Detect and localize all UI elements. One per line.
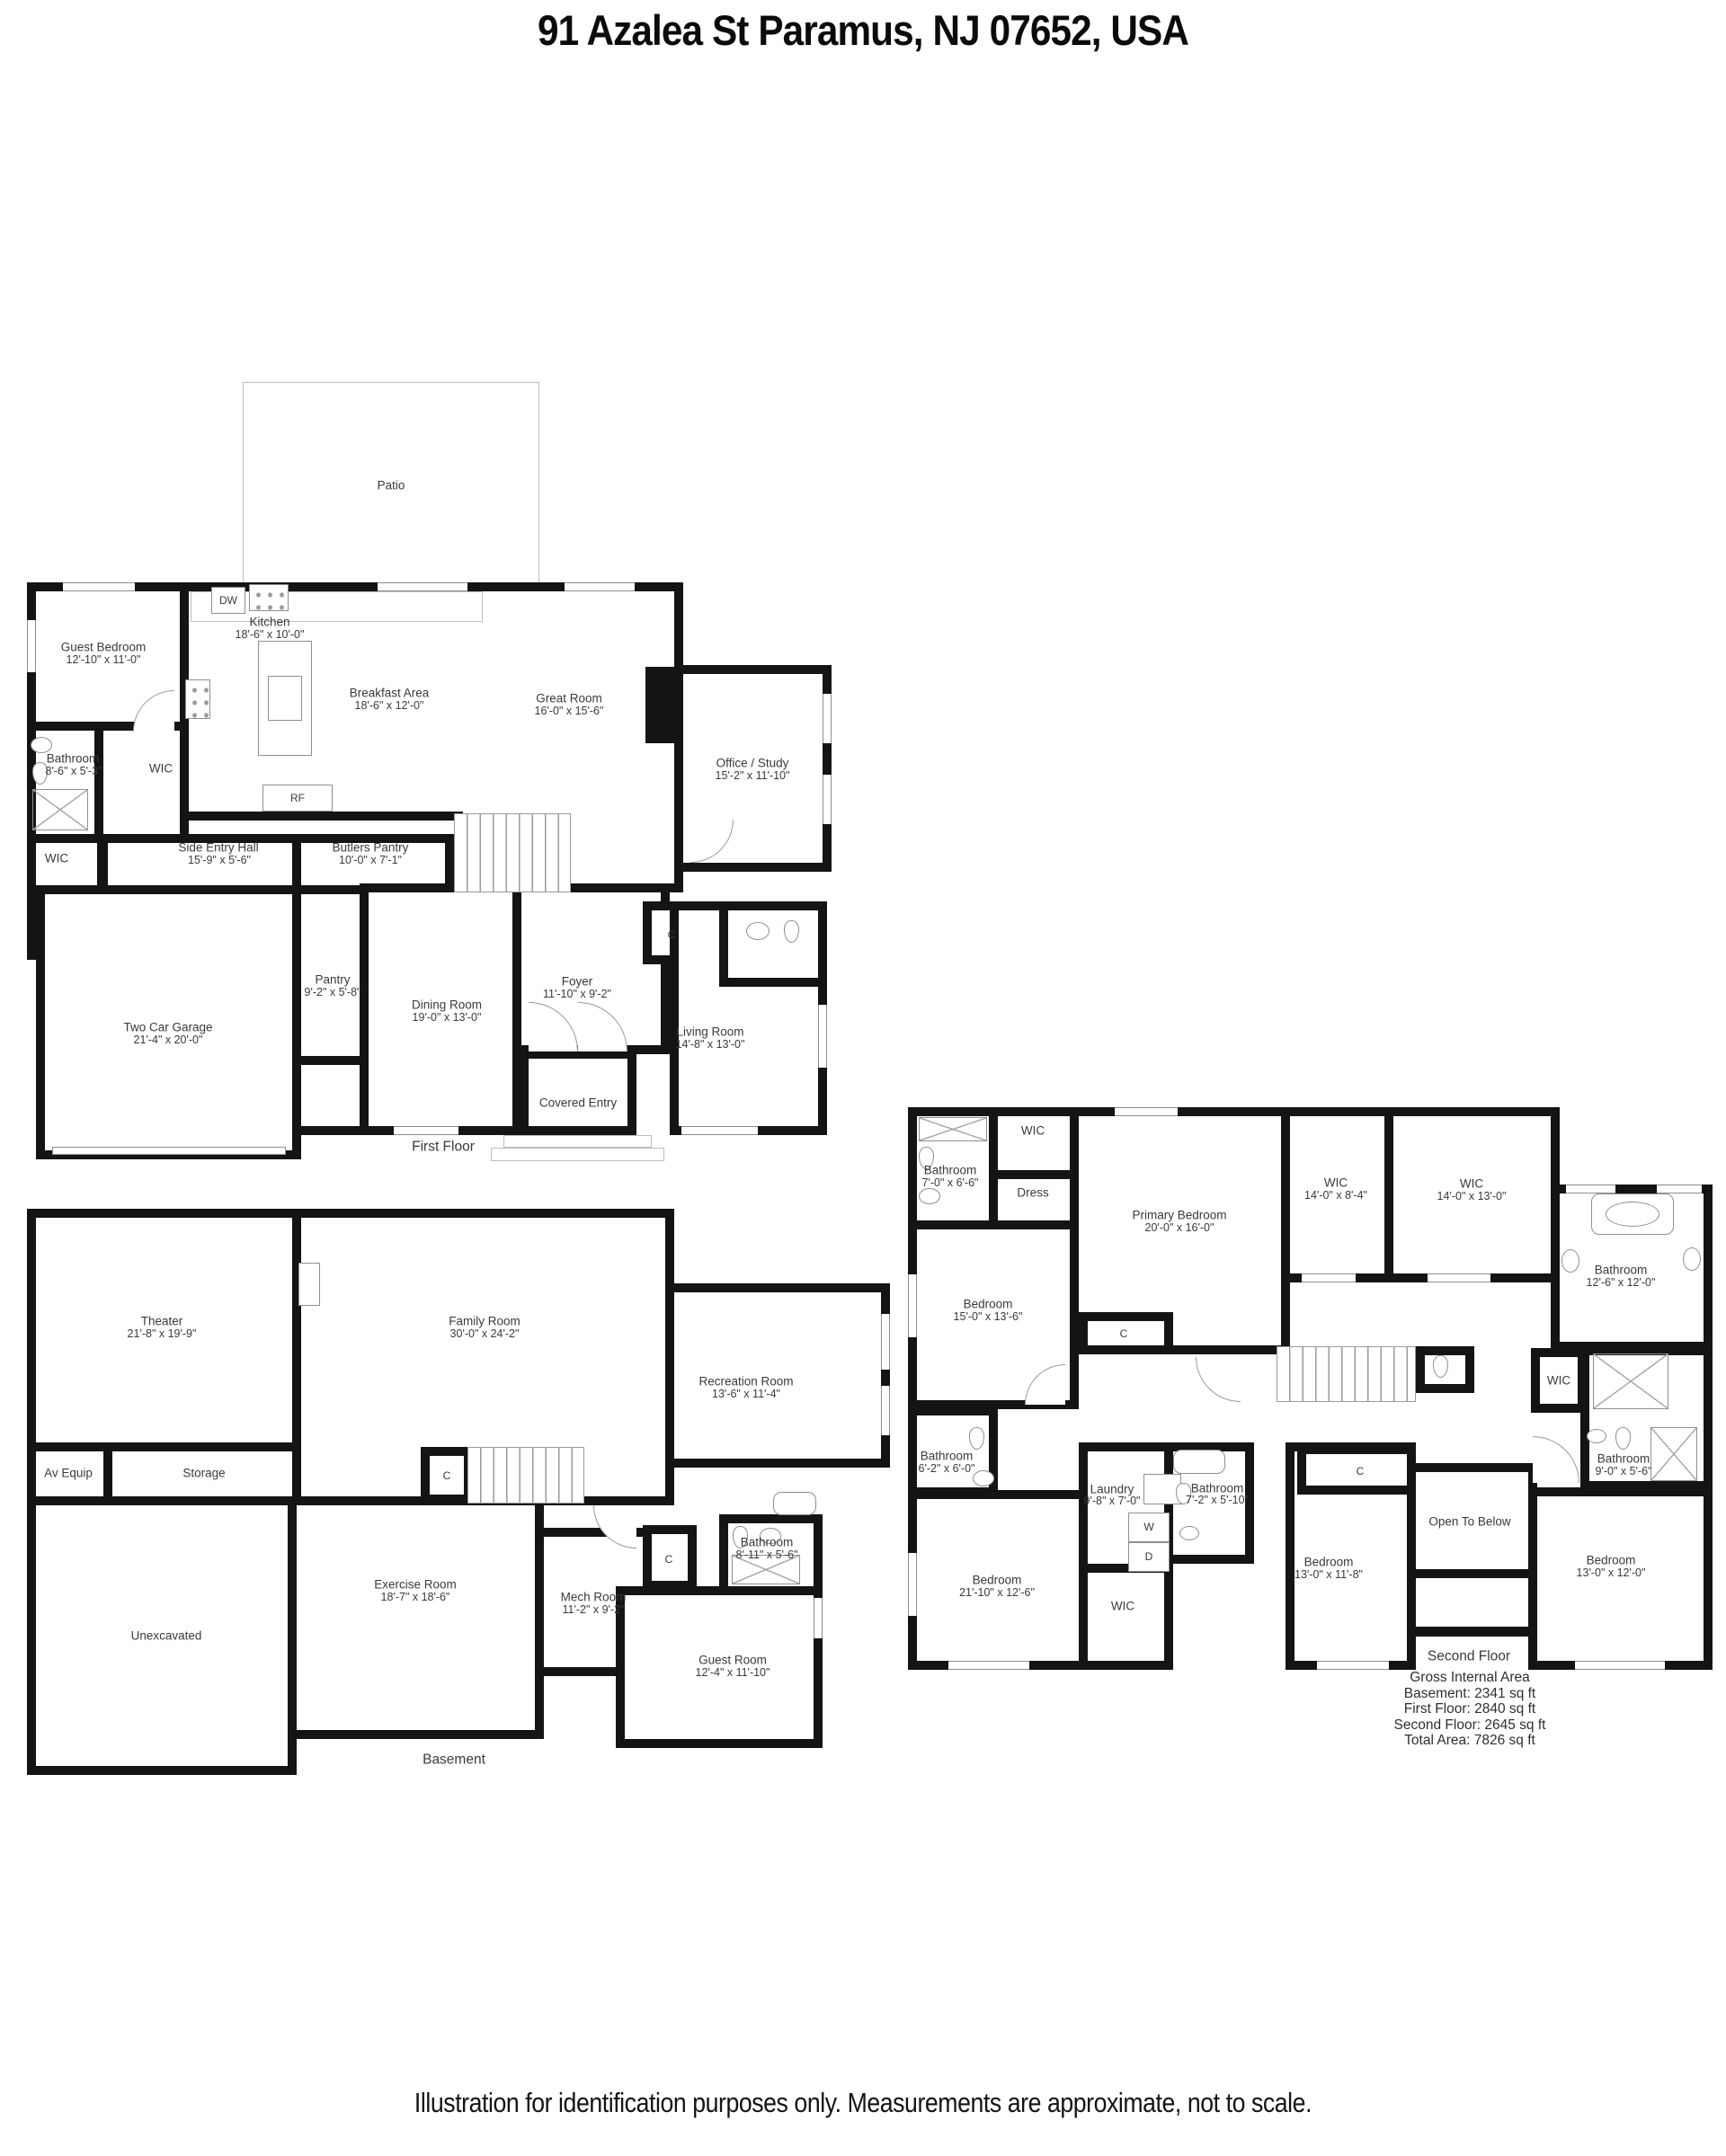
closet-label: C (668, 929, 676, 940)
window (881, 1314, 890, 1370)
kitchen-south-wall (184, 812, 463, 821)
bedroom-left-dims: 21'-10" x 12'-6" (959, 1587, 1035, 1599)
laundry-label: Laundry (1090, 1483, 1134, 1495)
sink-icon (919, 1188, 940, 1204)
office-study-label: Office / Study (716, 757, 789, 769)
dining-room-label: Dining Room (412, 998, 482, 1011)
dryer-label: D (1145, 1551, 1153, 1562)
window (818, 1005, 827, 1068)
second-floor-label: Second Floor (1428, 1649, 1510, 1664)
living-room-dims: 14'-8" x 13'-0" (676, 1039, 745, 1051)
exercise-room-walls (288, 1496, 544, 1739)
shower-icon (919, 1117, 987, 1141)
av-equip-label: Av Equip (44, 1467, 93, 1479)
bathroom-right-dims: 9'-0" x 5'-6" (1596, 1466, 1652, 1477)
window (1115, 1107, 1178, 1116)
shower-icon (1593, 1353, 1668, 1409)
guest-wic-walls (94, 722, 189, 843)
breakfast-area-dims: 18'-6" x 12'-0" (355, 700, 424, 712)
wic-top-walls (989, 1107, 1079, 1179)
entry-step-1 (503, 1135, 652, 1148)
area-summary-title: Gross Internal Area (1394, 1670, 1546, 1686)
kitchen-dims: 18'-6" x 10'-0" (236, 629, 305, 641)
dining-ext-walls (292, 1056, 369, 1135)
theater-dims: 21'-8" x 19'-9" (128, 1328, 197, 1340)
window (1302, 1273, 1356, 1282)
sink-icon (1683, 1247, 1701, 1271)
closet-label: C (443, 1470, 451, 1481)
wic-label: WIC (1021, 1124, 1045, 1137)
window (1317, 1661, 1389, 1670)
window (814, 1598, 823, 1638)
primary-bedroom-label: Primary Bedroom (1132, 1209, 1226, 1221)
window (1575, 1661, 1665, 1670)
window (27, 620, 36, 672)
window (681, 1126, 758, 1135)
dw-label: DW (219, 595, 237, 606)
window (823, 694, 832, 743)
wic-label: WIC (149, 762, 173, 775)
bedroom-front-dims: 15'-0" x 13'-6" (954, 1311, 1023, 1323)
family-room-dims: 30'-0" x 24'-2" (450, 1328, 520, 1340)
washer-label: W (1143, 1522, 1153, 1532)
exercise-room-label: Exercise Room (374, 1578, 457, 1591)
door-arc (1533, 1436, 1579, 1483)
shower-icon (32, 789, 88, 830)
window (823, 775, 832, 824)
window (1428, 1273, 1490, 1282)
bedroom-right-label: Bedroom (1587, 1554, 1636, 1566)
bathroom-top-label: Bathroom (924, 1164, 977, 1176)
bedroom-mid-label: Bedroom (1304, 1556, 1354, 1568)
powder-room-walls (719, 901, 827, 987)
wic-bottom-label: WIC (1111, 1600, 1134, 1612)
tub-icon (1173, 1450, 1225, 1474)
bathroom-top-dims: 7'-0" x 6'-6" (922, 1177, 979, 1189)
primary-bedroom-dims: 20'-0" x 16'-0" (1145, 1222, 1214, 1234)
window (394, 1126, 458, 1135)
mech-room-label: Mech Room (561, 1591, 627, 1603)
stairs-basement (467, 1447, 584, 1504)
entry-step-2 (491, 1148, 664, 1161)
laundry-dims: 9'-8" x 7'-0" (1084, 1495, 1141, 1507)
disclaimer-text: Illustration for identification purposes… (120, 2087, 1605, 2119)
basement-label: Basement (423, 1752, 485, 1767)
foyer-dims: 11'-10" x 9'-2" (543, 989, 611, 1000)
dining-room-dims: 19'-0" x 13'-0" (413, 1012, 482, 1024)
first-floor-label: First Floor (412, 1140, 475, 1154)
media-cabinet (298, 1263, 320, 1306)
bathroom-laundry-label: Bathroom (1191, 1482, 1244, 1495)
island-sink-icon (268, 676, 302, 721)
pantry-label: Pantry (315, 973, 350, 986)
closet-label: C (665, 1554, 673, 1565)
mech-room-dims: 11'-2" x 9'-2" (562, 1604, 624, 1616)
tub-icon (773, 1492, 816, 1515)
patio-label: Patio (378, 479, 405, 492)
dress-label: Dress (1017, 1186, 1048, 1199)
sink-icon (1561, 1249, 1579, 1273)
page-title: 91 Azalea St Paramus, NJ 07652, USA (86, 5, 1640, 55)
bedroom-right-dims: 13'-0" x 12'-0" (1577, 1567, 1646, 1579)
window (1657, 1184, 1702, 1193)
wic-a-label: WIC (1324, 1176, 1348, 1189)
floor-plan-sheet: 91 Azalea St Paramus, NJ 07652, USA (0, 0, 1726, 2156)
butlers-pantry-dims: 10'-0" x 7'-1" (339, 855, 402, 866)
wic-b-label: WIC (1460, 1177, 1483, 1190)
window (565, 582, 635, 591)
storage-label: Storage (182, 1467, 225, 1479)
great-room-label: Great Room (536, 692, 602, 705)
window (881, 1386, 890, 1435)
stairs-second-floor (1277, 1346, 1416, 1402)
unexcavated-label: Unexcavated (131, 1629, 202, 1642)
basement-guest-dims: 12'-4" x 11'-10" (696, 1667, 770, 1679)
open-to-below-label: Open To Below (1428, 1515, 1510, 1528)
wic-label: WIC (45, 852, 68, 865)
tub-basin (1606, 1202, 1659, 1227)
window (63, 582, 135, 591)
butlers-pantry-label: Butlers Pantry (333, 841, 409, 854)
wic-a-dims: 14'-0" x 8'-4" (1304, 1190, 1367, 1202)
family-room-label: Family Room (449, 1315, 520, 1327)
window (908, 1274, 917, 1337)
bedroom-mid-dims: 13'-0" x 11'-8" (1294, 1569, 1363, 1581)
basement-bathroom-dims: 8'-11" x 5'-6" (735, 1549, 797, 1561)
area-summary-basement: Basement: 2341 sq ft (1394, 1686, 1546, 1702)
guest-bedroom-dims: 12'-10" x 11'-0" (67, 654, 141, 666)
garage-label: Two Car Garage (123, 1021, 212, 1034)
area-summary-second: Second Floor: 2645 sq ft (1394, 1717, 1546, 1734)
range-icon (249, 584, 289, 611)
sink-icon (1179, 1526, 1199, 1540)
bathroom-left-dims: 6'-2" x 6'-0" (919, 1463, 975, 1475)
bathroom-dims: 8'-6" x 5'-3" (46, 766, 102, 777)
side-entry-hall-dims: 15'-9" x 5'-6" (188, 855, 251, 866)
primary-bathroom-label: Bathroom (1595, 1264, 1648, 1276)
bathroom-right-label: Bathroom (1597, 1452, 1650, 1465)
bathroom-laundry-dims: 7'-2" x 5'-10" (1186, 1495, 1249, 1506)
basement-bathroom-label: Bathroom (741, 1536, 794, 1548)
sink-icon (746, 922, 770, 940)
window (948, 1661, 1029, 1670)
sink-icon (973, 1470, 994, 1486)
cooktop-icon (185, 679, 210, 719)
wic-bottom-walls (1079, 1564, 1173, 1670)
great-room-dims: 16'-0" x 15'-6" (535, 705, 604, 717)
rf-label: RF (290, 793, 305, 803)
guest-bedroom-label: Guest Bedroom (61, 641, 147, 653)
closet-label: C (1120, 1328, 1128, 1339)
recreation-room-dims: 13'-6" x 11'-4" (712, 1389, 780, 1400)
stairs-first-floor (454, 813, 571, 892)
area-summary-total: Total Area: 7826 sq ft (1394, 1733, 1546, 1749)
covered-entry-walls (520, 1050, 636, 1135)
window (378, 582, 467, 591)
area-summary: Gross Internal Area Basement: 2341 sq ft… (1394, 1670, 1546, 1749)
garage-door (52, 1147, 286, 1155)
exercise-room-dims: 18'-7" x 18'-6" (381, 1592, 450, 1603)
shower-icon (1650, 1427, 1697, 1481)
recreation-room-label: Recreation Room (698, 1375, 793, 1388)
office-study-dims: 15'-2" x 11'-10" (716, 770, 790, 782)
landing-south-wall (1407, 1627, 1537, 1637)
bathroom-left-label: Bathroom (921, 1450, 974, 1462)
pantry-dims: 9'-2" x 5'-8" (305, 987, 361, 998)
basement-guest-label: Guest Room (698, 1654, 767, 1666)
foyer-label: Foyer (562, 975, 593, 988)
living-room-label: Living Room (676, 1025, 743, 1038)
wic-b-dims: 14'-0" x 13'-0" (1437, 1191, 1507, 1202)
covered-entry-label: Covered Entry (539, 1096, 617, 1109)
side-entry-hall-label: Side Entry Hall (178, 841, 258, 854)
fireplace (645, 667, 676, 743)
window (908, 1553, 917, 1616)
bedroom-front-label: Bedroom (964, 1298, 1013, 1310)
window (1566, 1184, 1615, 1193)
sink-icon (1587, 1429, 1606, 1443)
bedroom-left-label: Bedroom (973, 1574, 1022, 1586)
wic-hall-label: WIC (1547, 1374, 1570, 1387)
bathroom-label: Bathroom (47, 752, 100, 765)
garage-dims: 21'-4" x 20'-0" (134, 1034, 203, 1046)
area-summary-first: First Floor: 2840 sq ft (1394, 1701, 1546, 1717)
kitchen-label: Kitchen (249, 616, 289, 628)
door-arc (1196, 1357, 1241, 1402)
theater-label: Theater (141, 1315, 183, 1327)
primary-bathroom-dims: 12'-6" x 12'-0" (1587, 1277, 1656, 1289)
closet-label: C (1357, 1466, 1365, 1477)
breakfast-area-label: Breakfast Area (350, 687, 430, 699)
